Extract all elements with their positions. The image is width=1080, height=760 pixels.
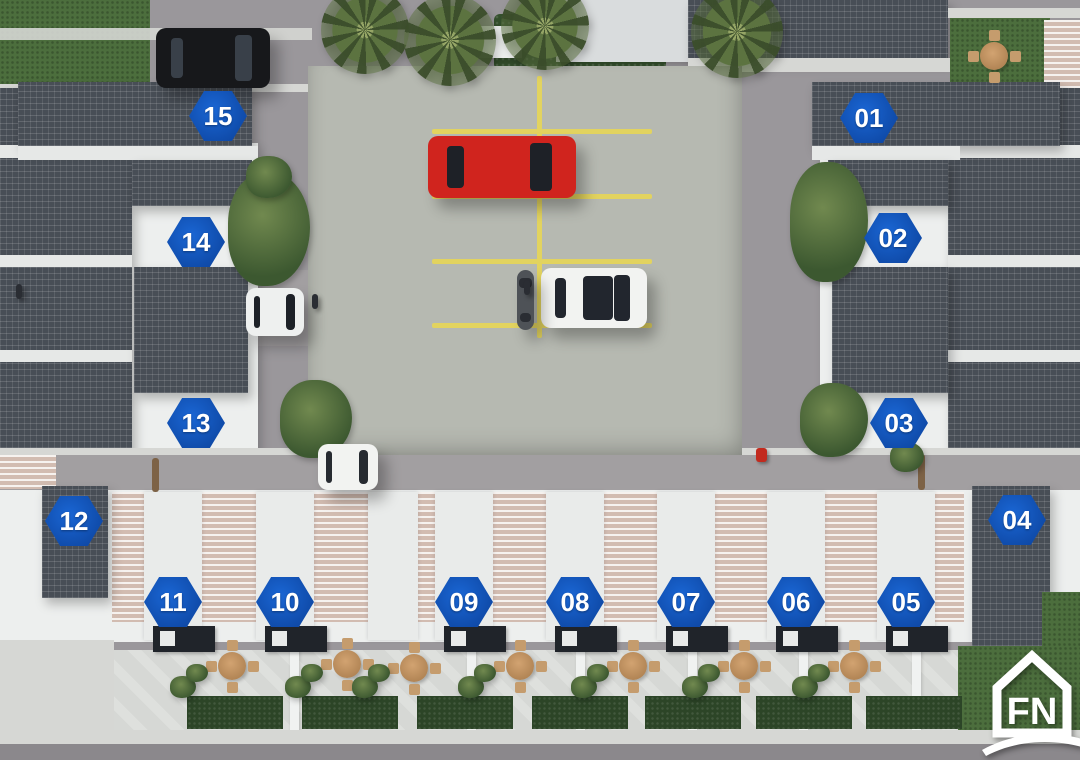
vehicle-white-hatchback xyxy=(541,268,647,328)
patio-table-set-7 xyxy=(827,639,881,693)
chairs xyxy=(409,642,420,653)
patio-grill-10 xyxy=(265,626,327,652)
chairs xyxy=(739,640,750,651)
vehicle-glass xyxy=(520,313,532,321)
vehicle-glass xyxy=(614,275,630,321)
fn-logo: FN xyxy=(982,636,1080,758)
grass-patch-6 xyxy=(756,696,852,729)
vehicle-glass xyxy=(254,296,260,329)
parking-line-row3 xyxy=(432,259,652,264)
roof-right-trim-3 xyxy=(948,350,1080,362)
grass-patch-2 xyxy=(302,696,398,729)
vehicle-red-sedan xyxy=(428,136,576,198)
table-top xyxy=(619,652,647,680)
table-top xyxy=(730,652,758,680)
table-top xyxy=(506,652,534,680)
person-1 xyxy=(16,284,22,299)
chairs xyxy=(989,30,1000,41)
palm-tree-1 xyxy=(321,0,409,74)
patio-table-set-6 xyxy=(717,639,771,693)
fire-hydrant xyxy=(756,448,767,462)
vehicle-glass xyxy=(555,278,567,319)
roof-unit-01-trim xyxy=(812,146,960,160)
chairs xyxy=(628,640,639,651)
logo-text: FN xyxy=(1007,691,1058,733)
pergola-top-right-corner xyxy=(1044,20,1080,88)
vehicle-glass xyxy=(286,294,295,331)
table-top xyxy=(333,650,361,678)
vehicle-glass xyxy=(530,143,552,190)
walkway-bottom-left xyxy=(0,640,114,732)
table-top xyxy=(840,652,868,680)
vehicle-glass xyxy=(447,146,463,188)
curb-lower-left xyxy=(0,448,308,455)
grass-patch-5 xyxy=(645,696,741,729)
table-top xyxy=(400,654,428,682)
roof-unit-15-trim xyxy=(18,146,258,160)
pergola-separator-mid xyxy=(368,492,418,640)
grass-patch-7 xyxy=(866,696,962,729)
grass-top-left xyxy=(0,0,150,88)
grass-patch-3 xyxy=(417,696,513,729)
vehicle-motorcycle xyxy=(517,270,534,330)
tree-trunk-left xyxy=(152,458,159,492)
vehicle-glass xyxy=(326,451,333,482)
roof-left-inset xyxy=(134,267,248,393)
grass-patch-1 xyxy=(187,696,283,729)
vehicle-glass xyxy=(583,276,613,319)
chairs xyxy=(849,640,860,651)
vehicle-glass xyxy=(171,38,184,79)
grass-patch-4 xyxy=(532,696,628,729)
vehicle-glass xyxy=(359,450,368,485)
person-3 xyxy=(524,280,530,295)
patio-table-set-1 xyxy=(205,639,259,693)
patio-table-set-3 xyxy=(387,641,441,695)
table-top xyxy=(980,42,1008,70)
roof-right-trim-2 xyxy=(948,255,1080,267)
road-bottom xyxy=(0,744,1080,760)
roof-right-inset xyxy=(832,267,948,393)
person-2 xyxy=(312,294,318,309)
vehicle-white-car-entrance xyxy=(246,288,304,336)
patio-table-set-5 xyxy=(606,639,660,693)
chairs xyxy=(227,640,238,651)
pergola-bottom-left-corner xyxy=(0,455,56,489)
vehicle-white-car-road xyxy=(318,444,378,490)
patio-grill-05 xyxy=(886,626,948,652)
roof-right-trim-1 xyxy=(948,145,1080,158)
townhouse-pergola-band xyxy=(112,492,964,622)
patio-table-set-4 xyxy=(493,639,547,693)
walkway-bottom xyxy=(0,730,1080,744)
aerial-site-plan: FN 010203040506070809101112131415 xyxy=(0,0,1080,760)
table-top xyxy=(218,652,246,680)
chairs xyxy=(515,640,526,651)
vehicle-black-suv xyxy=(156,28,270,88)
parking-line-row1 xyxy=(432,129,652,134)
curb-top-right-corner xyxy=(948,8,1080,18)
roof-left-trim-3 xyxy=(0,350,132,362)
vehicle-glass xyxy=(235,35,252,81)
patio-table-set-8 xyxy=(967,29,1021,83)
chairs xyxy=(342,638,353,649)
roof-left-trim-2 xyxy=(0,255,132,267)
